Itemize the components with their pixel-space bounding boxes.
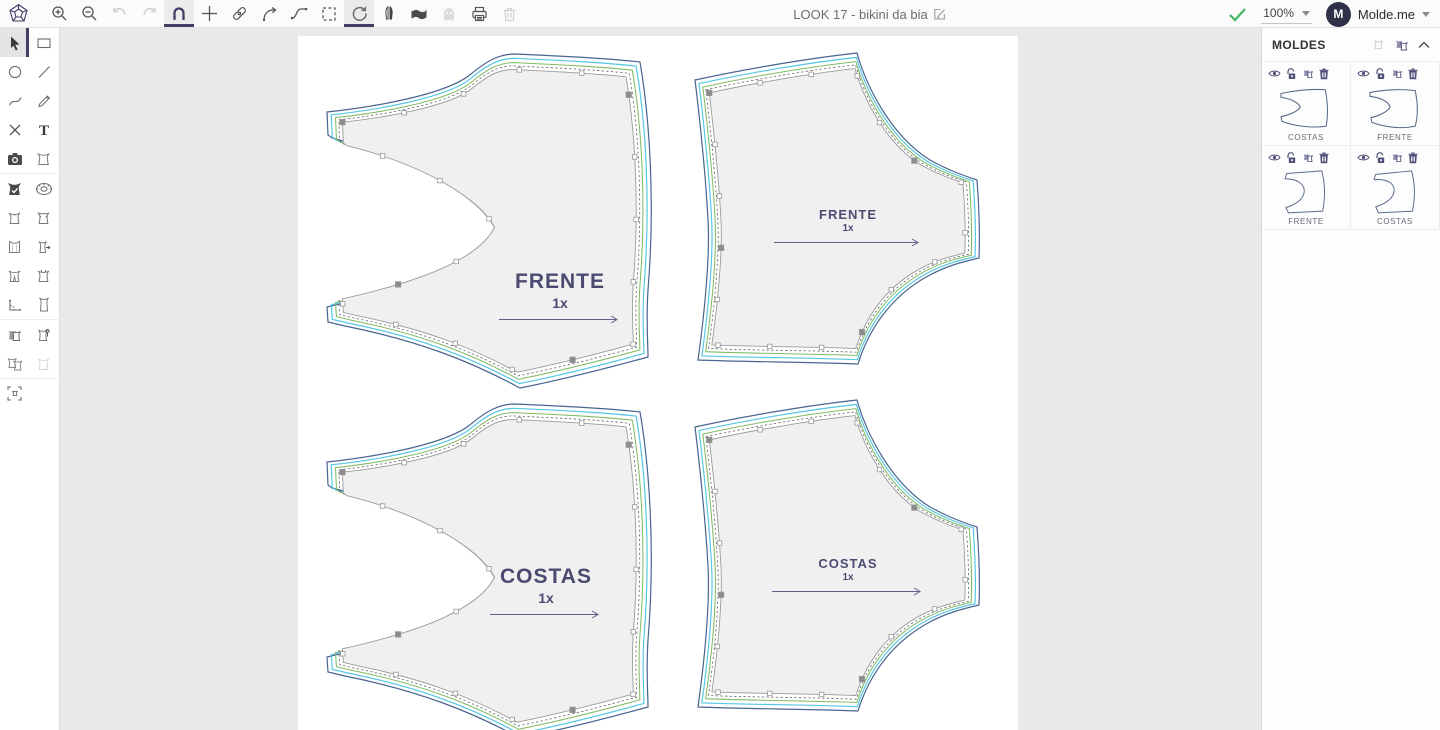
duplicate-icon[interactable] [1391,152,1403,163]
piece-check-tool[interactable] [0,174,29,203]
piece-notch-tool[interactable] [29,261,58,290]
visibility-icon[interactable] [1268,69,1281,78]
molde-card-label: FRENTE [1377,133,1413,142]
duplicate-icon[interactable] [1302,68,1314,79]
snap-magnet-icon[interactable] [164,0,194,27]
select-tool[interactable] [0,28,29,57]
pattern-piece-frente-small[interactable] [688,46,987,372]
molde-card-costas-top[interactable]: COSTAS [1351,146,1440,230]
print-icon[interactable] [464,0,494,27]
molde-card-label: FRENTE [1288,217,1324,226]
zoom-out-icon[interactable] [74,0,104,27]
molde-thumbnail [1278,164,1334,217]
molde-thumbnail [1275,80,1337,133]
piece-move-tool[interactable] [29,232,58,261]
app-logo-icon[interactable] [0,0,36,27]
delete-point-tool[interactable] [0,115,29,144]
piece-tool[interactable] [29,144,58,173]
add-piece-icon [1372,38,1385,51]
molde-card-frente-top[interactable]: FRENTE [1262,146,1351,230]
moldes-panel-title: MOLDES [1272,38,1372,52]
duplicate-icon[interactable] [1302,152,1314,163]
artboard[interactable]: FRENTE 1x FRENTE 1x COSTAS 1x COSTAS 1x [298,36,1018,730]
edit-title-icon[interactable] [934,8,947,21]
visibility-icon[interactable] [1357,153,1370,162]
lock-icon[interactable] [1286,68,1297,80]
mirror-icon[interactable] [374,0,404,27]
molde-thumbnail [1364,80,1426,133]
undo-icon [104,0,134,27]
zoom-caret-icon [1302,11,1310,16]
topbar-right: 100% M Molde.me [1228,0,1430,28]
photo-tool[interactable] [0,144,29,173]
curve-tool[interactable] [0,86,29,115]
crosshair-icon[interactable] [194,0,224,27]
canvas-background[interactable]: FRENTE 1x FRENTE 1x COSTAS 1x COSTAS 1x [60,28,1261,730]
redo-icon [134,0,164,27]
trash-icon[interactable] [1408,68,1418,80]
document-title: LOOK 17 - bikini da bia [793,0,946,28]
trash-icon[interactable] [1408,152,1418,164]
molde-thumbnail [1367,164,1423,217]
moldes-panel: MOLDES [1261,28,1440,730]
zoom-in-icon[interactable] [44,0,74,27]
center-piece-tool[interactable] [0,379,29,408]
trash-icon[interactable] [1319,152,1329,164]
account-name: Molde.me [1358,7,1415,22]
saved-check-icon [1228,7,1247,22]
molde-card-costas-bottom[interactable]: COSTAS [1262,62,1351,146]
ghost-icon [434,0,464,27]
pattern-piece-costas-large[interactable] [318,393,667,730]
pattern-piece-frente-large[interactable] [318,43,667,398]
avatar[interactable]: M [1326,2,1351,27]
zoom-level-select[interactable]: 100% [1261,4,1312,24]
spline-icon[interactable] [284,0,314,27]
visibility-icon[interactable] [1357,69,1370,78]
moldes-card-grid: COSTAS FRENTE FRENTE [1262,62,1440,230]
top-toolbar: LOOK 17 - bikini da bia 100% M Molde.me [0,0,1440,28]
trash-icon[interactable] [1319,68,1329,80]
visibility-icon[interactable] [1268,153,1281,162]
piece-disabled-tool [29,349,58,378]
account-caret-icon [1422,12,1430,17]
account-menu[interactable]: M Molde.me [1326,2,1430,27]
pencil-tool[interactable] [29,86,58,115]
curve-arrow-icon[interactable] [254,0,284,27]
piece-back-tool[interactable] [29,203,58,232]
svg-text:T: T [38,123,48,138]
rotate-icon[interactable] [344,0,374,27]
piece-dart-tool[interactable] [0,261,29,290]
collapse-panel-icon[interactable] [1418,41,1430,49]
moldes-panel-header: MOLDES [1262,28,1440,62]
line-tool[interactable] [29,57,58,86]
measure-tape-tool[interactable] [29,174,58,203]
lock-icon[interactable] [1375,68,1386,80]
piece-front-tool[interactable] [0,203,29,232]
molde-card-frente-bottom[interactable]: FRENTE [1351,62,1440,146]
duplicate-pieces-icon[interactable] [1394,38,1409,52]
molde-card-label: COSTAS [1377,217,1413,226]
ellipse-tool[interactable] [0,57,29,86]
piece-pin-tool[interactable] [29,320,58,349]
fabric-icon[interactable] [404,0,434,27]
piece-tall-tool[interactable] [29,290,58,319]
zoom-level-value: 100% [1263,6,1294,20]
document-title-text: LOOK 17 - bikini da bia [793,7,927,22]
marquee-select-icon[interactable] [314,0,344,27]
tool-sidebar: T [0,28,60,730]
rectangle-tool[interactable] [29,28,58,57]
lock-icon[interactable] [1375,152,1386,164]
piece-lines-tool[interactable] [0,232,29,261]
blade-icon[interactable] [224,0,254,27]
delete-icon [494,0,524,27]
lock-icon[interactable] [1286,152,1297,164]
molde-card-label: COSTAS [1288,133,1324,142]
duplicate-icon[interactable] [1391,68,1403,79]
text-tool[interactable]: T [29,115,58,144]
pieces-copy-tool[interactable] [0,349,29,378]
angle-measure-tool[interactable] [0,290,29,319]
pattern-piece-costas-small[interactable] [688,393,987,730]
pieces-stack-tool[interactable] [0,320,29,349]
